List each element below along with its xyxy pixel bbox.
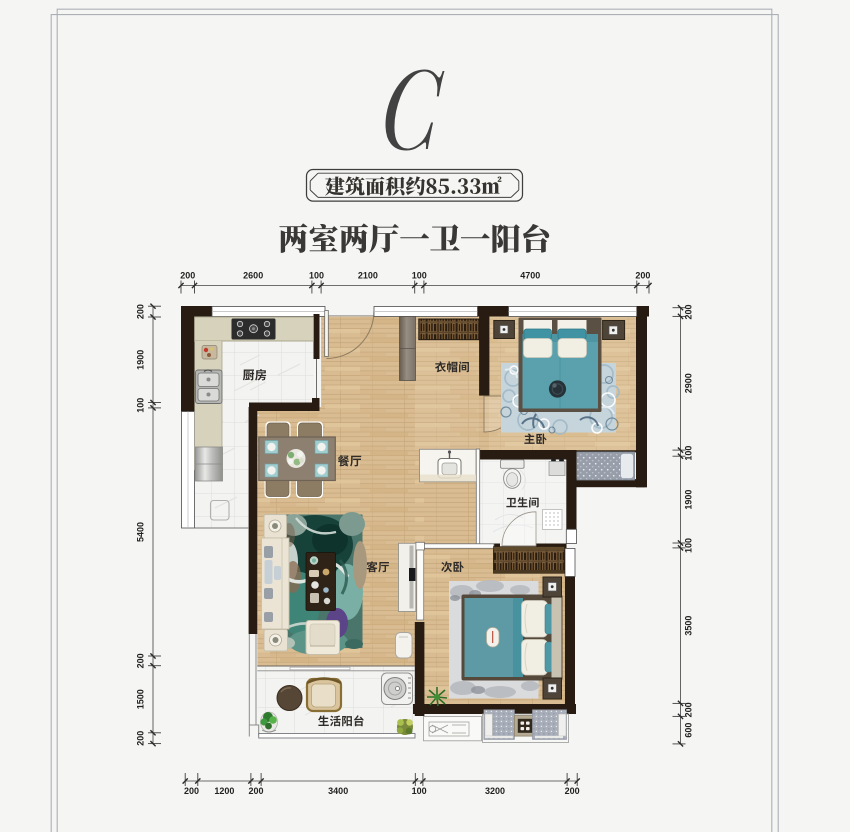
svg-text:5400: 5400 [136, 522, 146, 542]
svg-text:200: 200 [248, 786, 263, 796]
svg-text:2900: 2900 [684, 373, 694, 393]
svg-text:200: 200 [136, 304, 146, 319]
svg-text:1900: 1900 [136, 350, 146, 370]
svg-text:3200: 3200 [485, 786, 505, 796]
svg-text:100: 100 [684, 446, 694, 461]
svg-text:100: 100 [684, 538, 694, 553]
svg-text:600: 600 [684, 723, 694, 738]
svg-text:100: 100 [136, 398, 146, 413]
svg-text:200: 200 [684, 304, 694, 319]
svg-text:200: 200 [184, 786, 199, 796]
svg-text:200: 200 [180, 271, 195, 281]
svg-text:100: 100 [412, 786, 427, 796]
svg-text:1500: 1500 [136, 689, 146, 709]
svg-text:200: 200 [136, 731, 146, 746]
svg-text:200: 200 [136, 653, 146, 668]
svg-text:2100: 2100 [358, 271, 378, 281]
svg-text:2600: 2600 [243, 271, 263, 281]
svg-text:200: 200 [565, 786, 580, 796]
svg-text:200: 200 [635, 271, 650, 281]
svg-text:100: 100 [412, 271, 427, 281]
svg-text:200: 200 [684, 702, 694, 717]
svg-text:3400: 3400 [328, 786, 348, 796]
svg-text:4700: 4700 [520, 271, 540, 281]
svg-text:1200: 1200 [214, 786, 234, 796]
svg-text:100: 100 [309, 271, 324, 281]
svg-text:3500: 3500 [684, 616, 694, 636]
svg-text:1900: 1900 [684, 490, 694, 510]
